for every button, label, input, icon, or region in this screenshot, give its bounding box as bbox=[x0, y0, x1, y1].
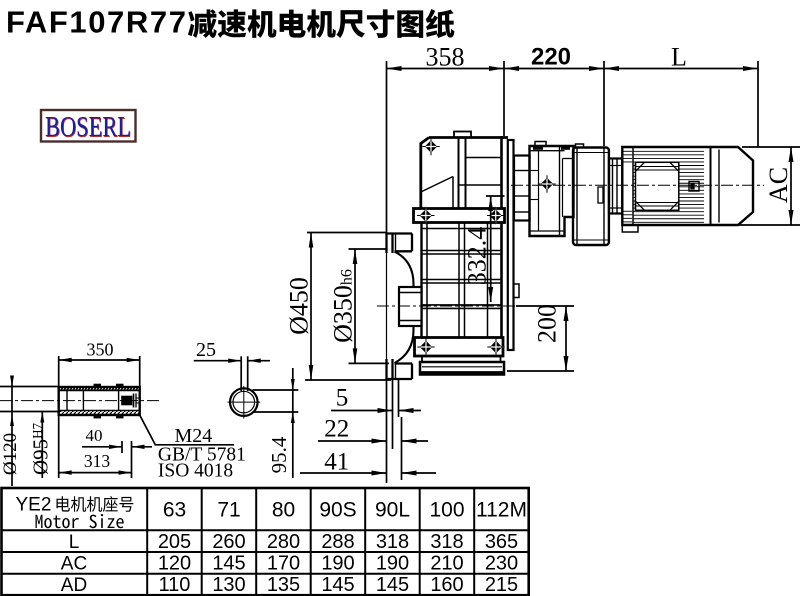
svg-text:318: 318 bbox=[430, 531, 463, 553]
svg-text:ISO 4018: ISO 4018 bbox=[158, 461, 233, 482]
svg-text:Ø450: Ø450 bbox=[285, 277, 314, 335]
svg-text:350: 350 bbox=[87, 340, 114, 360]
svg-text:288: 288 bbox=[321, 531, 354, 553]
svg-text:40: 40 bbox=[86, 426, 103, 445]
svg-text:280: 280 bbox=[267, 531, 300, 553]
svg-text:5: 5 bbox=[336, 385, 349, 412]
svg-text:L: L bbox=[671, 43, 687, 72]
svg-text:145: 145 bbox=[376, 574, 409, 596]
svg-text:AD: AD bbox=[61, 575, 87, 596]
svg-text:145: 145 bbox=[321, 574, 354, 596]
svg-text:90L: 90L bbox=[375, 499, 410, 522]
svg-text:FAF107R77: FAF107R77 bbox=[6, 5, 188, 40]
svg-text:110: 110 bbox=[159, 574, 191, 596]
svg-text:120: 120 bbox=[158, 553, 191, 575]
svg-text:AC: AC bbox=[764, 167, 793, 203]
svg-text:YE2: YE2 bbox=[16, 495, 52, 516]
svg-text:22: 22 bbox=[324, 416, 349, 443]
svg-text:41: 41 bbox=[324, 449, 349, 476]
svg-text:318: 318 bbox=[376, 531, 409, 553]
svg-text:AC: AC bbox=[61, 554, 87, 575]
svg-text:190: 190 bbox=[321, 553, 354, 575]
svg-text:112M: 112M bbox=[476, 499, 527, 522]
svg-text:145: 145 bbox=[212, 553, 245, 575]
svg-text:135: 135 bbox=[267, 574, 300, 596]
svg-text:215: 215 bbox=[485, 574, 518, 596]
svg-text:160: 160 bbox=[430, 574, 463, 596]
svg-text:80: 80 bbox=[272, 499, 295, 522]
svg-text:95.4: 95.4 bbox=[267, 436, 291, 473]
svg-text:200: 200 bbox=[533, 304, 562, 343]
svg-text:BOSERL: BOSERL bbox=[45, 111, 131, 143]
svg-text:130: 130 bbox=[212, 574, 245, 596]
svg-text:332.4: 332.4 bbox=[463, 227, 492, 286]
svg-text:230: 230 bbox=[485, 553, 518, 575]
svg-text:220: 220 bbox=[531, 44, 571, 71]
svg-text:205: 205 bbox=[158, 531, 191, 553]
svg-text:71: 71 bbox=[217, 499, 240, 522]
svg-text:190: 190 bbox=[376, 553, 409, 575]
svg-text:365: 365 bbox=[485, 531, 518, 553]
svg-text:170: 170 bbox=[267, 553, 300, 575]
svg-text:63: 63 bbox=[163, 499, 186, 522]
svg-text:25: 25 bbox=[196, 339, 216, 361]
svg-text:313: 313 bbox=[84, 451, 111, 471]
svg-text:L: L bbox=[69, 532, 80, 553]
svg-text:260: 260 bbox=[212, 531, 245, 553]
svg-text:90S: 90S bbox=[319, 499, 356, 522]
svg-text:210: 210 bbox=[430, 553, 463, 575]
svg-text:100: 100 bbox=[429, 499, 464, 522]
svg-text:Ø120: Ø120 bbox=[0, 433, 21, 475]
svg-text:358: 358 bbox=[426, 43, 465, 72]
